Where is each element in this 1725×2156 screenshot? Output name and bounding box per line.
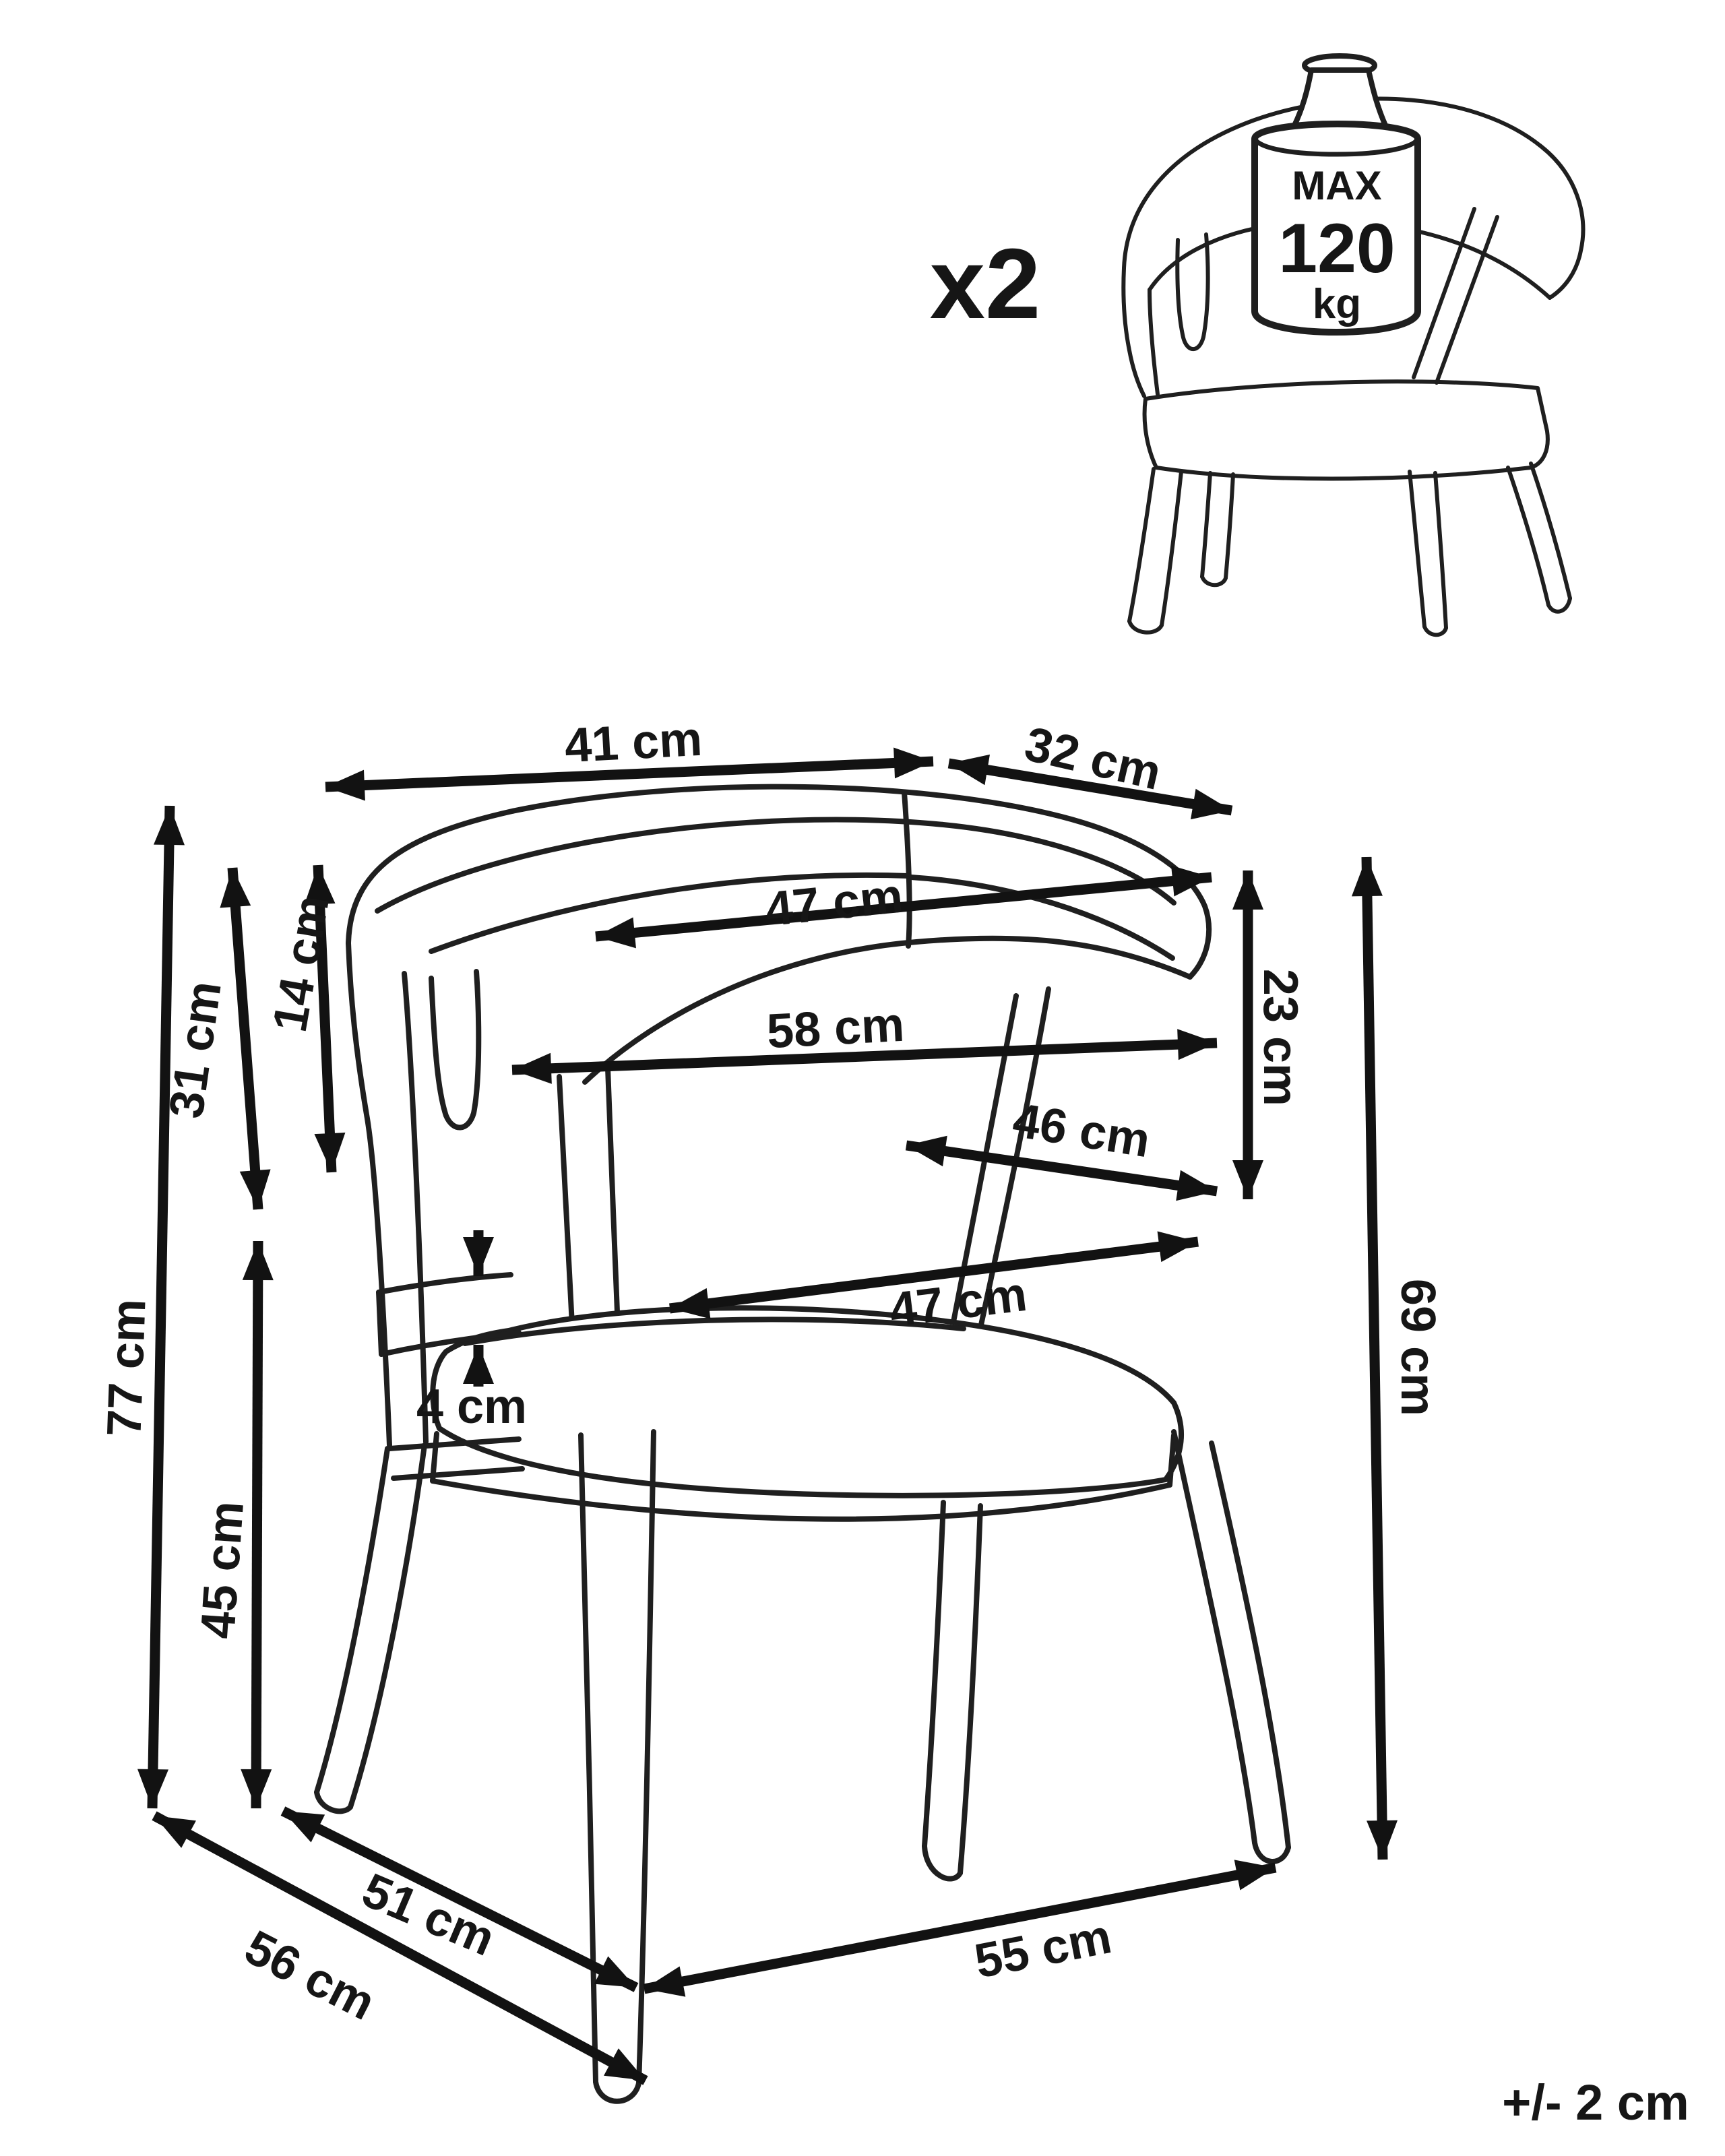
dimension-back-to-seat-height: 31 cm	[159, 868, 270, 1209]
quantity-badge: x2	[930, 228, 1041, 340]
dimension-floor-width-front: 55 cm	[644, 1860, 1276, 1996]
dimension-floor-depth-outer: 56 cm	[154, 1816, 646, 2081]
dimension-label-overall-width: 58 cm	[765, 998, 906, 1059]
dimension-label-total-height: 77 cm	[97, 1298, 156, 1438]
weight-max-label: MAX	[1292, 163, 1381, 208]
dimension-label-seat-height: 45 cm	[191, 1499, 254, 1640]
backrest-center-seam	[904, 792, 910, 946]
product-dimension-sheet: MAX 120 kg x2	[0, 0, 1725, 2156]
dimension-label-backrest-right-height: 23 cm	[1253, 969, 1307, 1106]
weight-unit-label: kg	[1313, 281, 1361, 327]
tolerance-note: +/- 2 cm	[1502, 2074, 1689, 2130]
dimension-total-height: 77 cm	[97, 806, 185, 1808]
weight-value-label: 120	[1278, 210, 1395, 288]
dimension-seat-height: 45 cm	[191, 1241, 274, 1808]
dimension-label-cushion-thickness: 4 cm	[416, 1380, 527, 1434]
dimension-label-back-top-width: 41 cm	[563, 712, 703, 773]
dimension-label-floor-depth-outer: 56 cm	[237, 1920, 383, 2031]
dimension-label-seat-width: 46 cm	[1009, 1093, 1154, 1168]
dimension-seat-width: 46 cm	[906, 1093, 1217, 1201]
dimension-label-floor-to-backrest: 69 cm	[1391, 1279, 1445, 1416]
dimension-backrest-left-height: 14 cm	[263, 865, 346, 1172]
dimension-floor-to-backrest: 69 cm	[1352, 857, 1445, 1860]
dimension-backrest-right-height: 23 cm	[1232, 870, 1307, 1199]
chair-dimension-diagram: MAX 120 kg x2	[0, 0, 1725, 2156]
dimension-overall-width: 58 cm	[512, 998, 1217, 1084]
seat-cushion	[433, 1308, 1181, 1496]
